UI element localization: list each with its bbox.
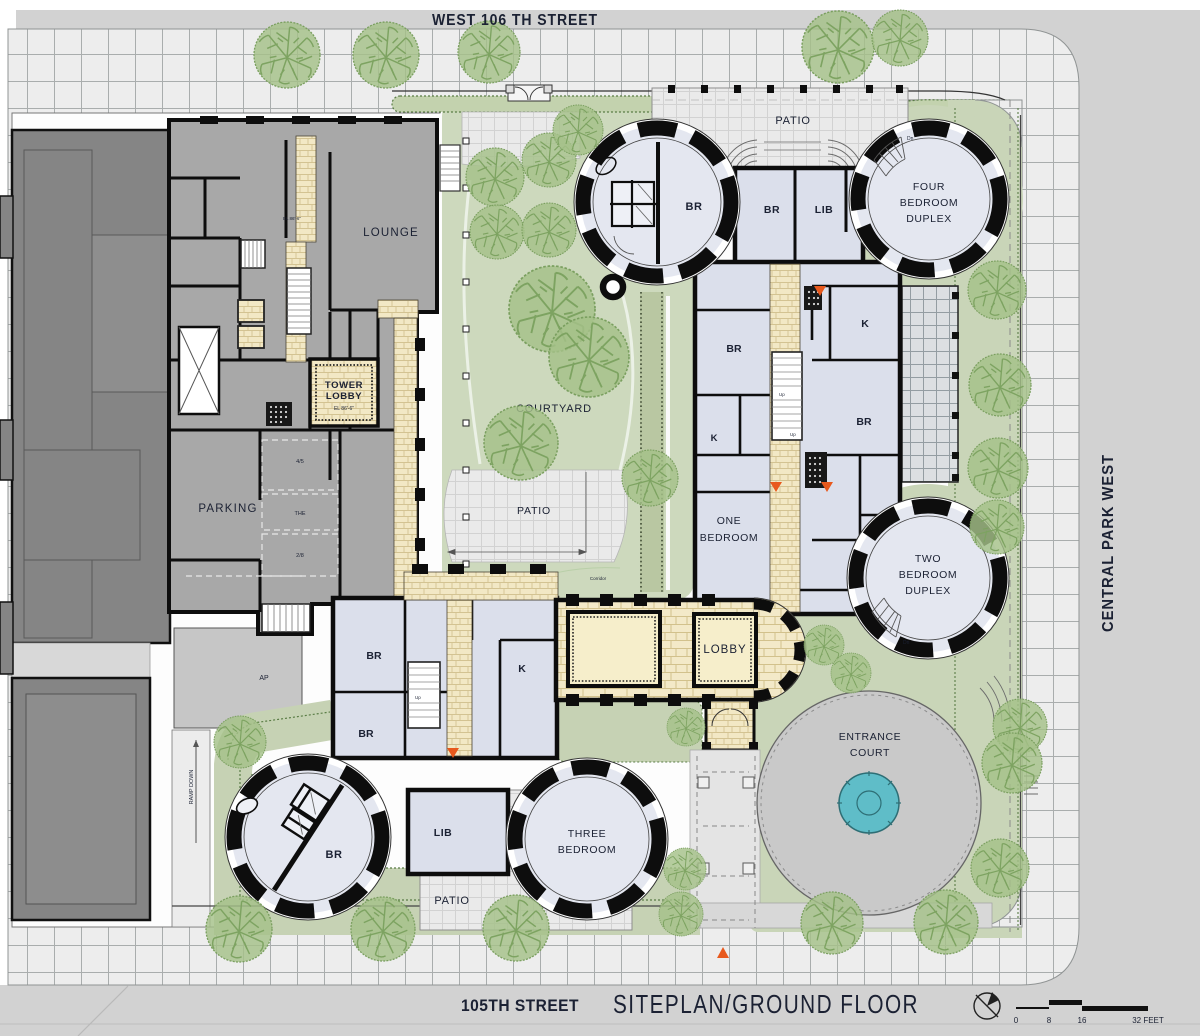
- svg-text:BR: BR: [726, 343, 742, 355]
- svg-text:WEST 106 TH STREET: WEST 106 TH STREET: [432, 12, 598, 29]
- svg-text:DUPLEX: DUPLEX: [905, 585, 951, 597]
- svg-text:PARKING: PARKING: [198, 503, 257, 515]
- svg-text:AP: AP: [259, 675, 269, 682]
- svg-text:K: K: [861, 318, 869, 330]
- svg-text:SITEPLAN/GROUND FLOOR: SITEPLAN/GROUND FLOOR: [613, 989, 919, 1019]
- svg-text:ONE: ONE: [717, 515, 742, 527]
- svg-text:BR: BR: [856, 416, 872, 428]
- svg-text:0: 0: [1014, 1016, 1019, 1025]
- svg-text:LIB: LIB: [434, 827, 452, 839]
- svg-text:4/5: 4/5: [296, 459, 304, 465]
- svg-text:Up: Up: [779, 392, 785, 397]
- svg-text:2/8: 2/8: [296, 553, 304, 559]
- svg-text:Up: Up: [790, 432, 796, 437]
- svg-text:TOWER: TOWER: [325, 380, 363, 391]
- svg-text:CENTRAL PARK WEST: CENTRAL PARK WEST: [1100, 454, 1117, 632]
- svg-text:COURT: COURT: [850, 747, 890, 759]
- svg-text:ENTRANCE: ENTRANCE: [839, 731, 902, 743]
- svg-text:THE: THE: [295, 511, 306, 517]
- svg-text:EL 86'-6": EL 86'-6": [283, 216, 301, 221]
- svg-text:Dn: Dn: [907, 136, 914, 142]
- svg-text:Up: Up: [415, 695, 421, 700]
- svg-text:BR: BR: [366, 650, 382, 662]
- svg-text:BEDROOM: BEDROOM: [700, 532, 758, 544]
- svg-text:BR: BR: [326, 849, 343, 861]
- svg-text:BR: BR: [686, 201, 703, 213]
- svg-text:BR: BR: [764, 204, 780, 216]
- svg-text:LOBBY: LOBBY: [326, 391, 362, 402]
- svg-text:RAMP DOWN: RAMP DOWN: [189, 770, 195, 805]
- svg-text:K: K: [711, 433, 718, 444]
- svg-text:PATIO: PATIO: [434, 895, 469, 907]
- svg-text:LOBBY: LOBBY: [703, 644, 746, 656]
- svg-text:105TH STREET: 105TH STREET: [461, 997, 579, 1015]
- svg-text:LOUNGE: LOUNGE: [363, 227, 419, 239]
- svg-text:EL 86'-6": EL 86'-6": [334, 406, 354, 412]
- svg-text:DUPLEX: DUPLEX: [906, 213, 952, 225]
- svg-text:K: K: [518, 663, 526, 675]
- svg-text:BEDROOM: BEDROOM: [900, 197, 958, 209]
- svg-text:LIB: LIB: [815, 204, 833, 216]
- svg-text:BR: BR: [358, 728, 374, 740]
- svg-text:Corridor: Corridor: [590, 576, 607, 581]
- svg-text:THREE: THREE: [568, 828, 607, 840]
- svg-text:PATIO: PATIO: [775, 115, 810, 127]
- svg-text:PATIO: PATIO: [517, 505, 551, 517]
- svg-text:BEDROOM: BEDROOM: [558, 844, 616, 856]
- svg-text:32 FEET: 32 FEET: [1132, 1016, 1164, 1025]
- svg-text:TWO: TWO: [915, 553, 941, 565]
- svg-text:8: 8: [1047, 1016, 1052, 1025]
- svg-text:BEDROOM: BEDROOM: [899, 569, 957, 581]
- svg-text:Dn: Dn: [903, 640, 910, 646]
- svg-text:FOUR: FOUR: [913, 181, 945, 193]
- svg-text:16: 16: [1078, 1016, 1087, 1025]
